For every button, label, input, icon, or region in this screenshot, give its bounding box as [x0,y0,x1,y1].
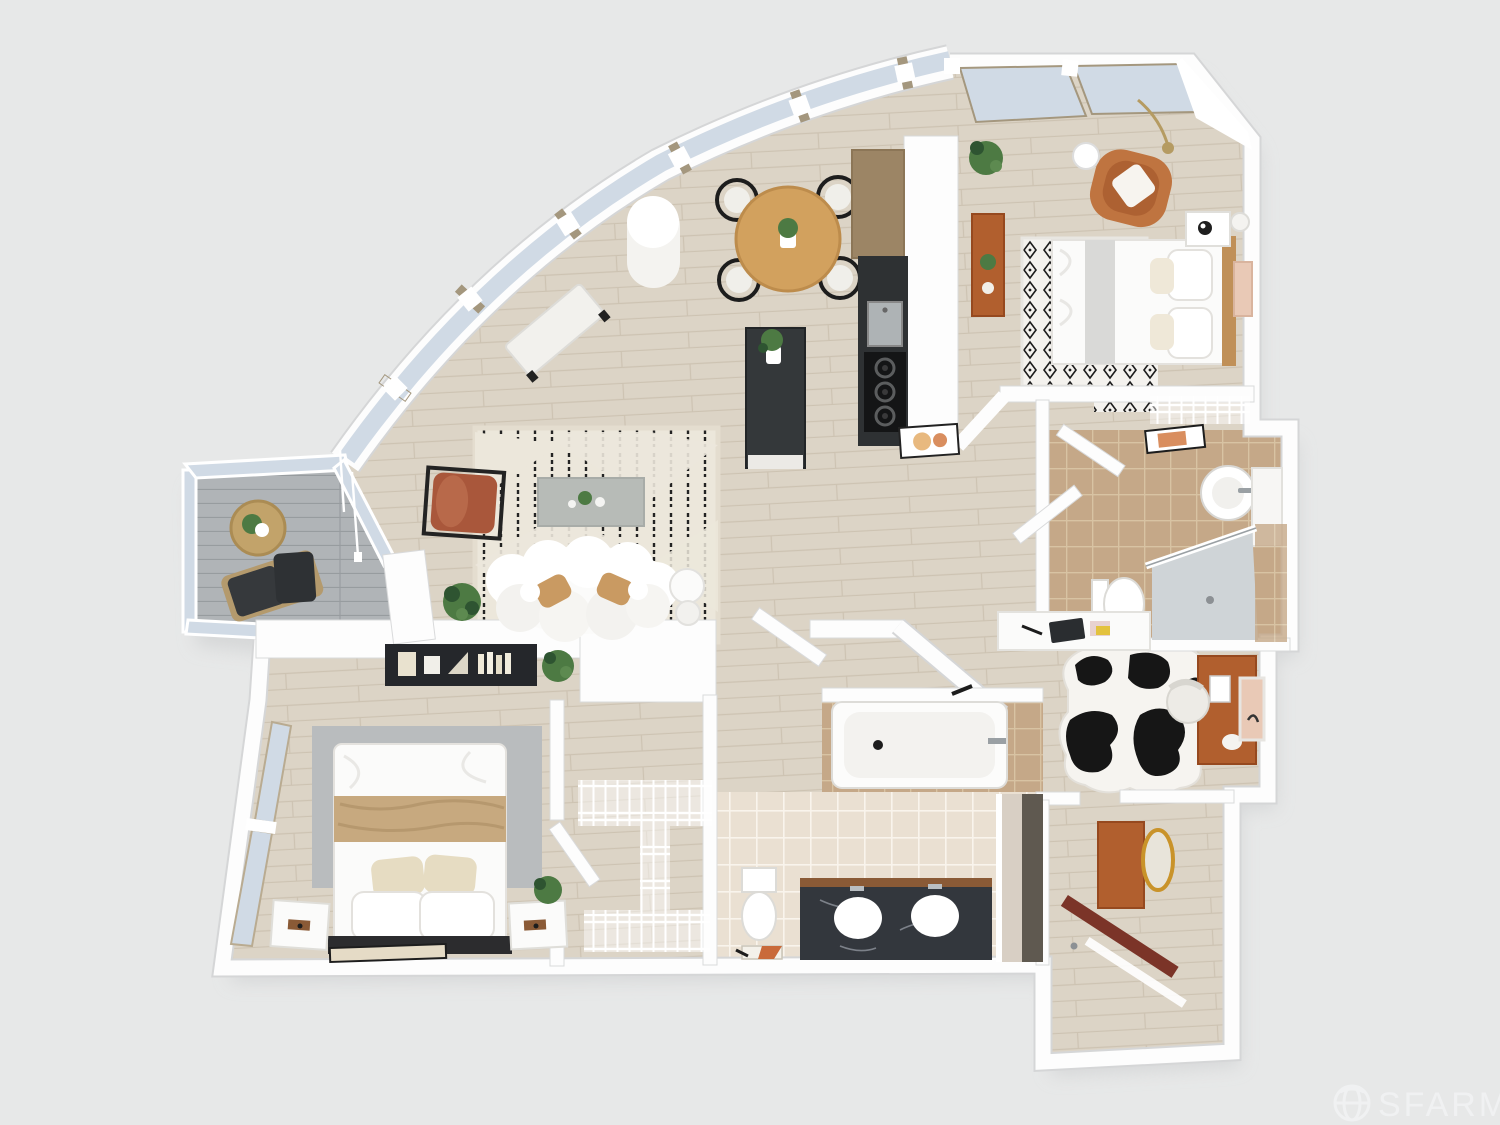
bath1-top-wall [810,620,904,638]
desk-paper [1210,676,1230,702]
dining-area [717,177,860,300]
office-leaning-art [1240,678,1264,740]
tub-drain [873,740,883,750]
gas-stove [864,352,906,432]
bed-primary [1052,236,1236,366]
entry-console [1098,822,1144,908]
office-chair [1167,681,1209,723]
kitchen-cabinets-upper [852,150,904,258]
accent-armchair [424,467,504,538]
vanity-sink [911,895,959,937]
bathtub [832,686,1007,788]
desk-nook [998,612,1150,650]
watermark-text: SFARMLS [1378,1086,1500,1124]
bath-mat [736,946,782,959]
faucet [882,307,887,312]
bedroom1-plant [969,141,1003,175]
pillow [1168,308,1212,358]
double-vanity [800,878,992,960]
accent-pillow [1150,258,1174,294]
office-entry-wall-b [1120,790,1234,803]
toilet-1 [742,868,776,940]
side-table [670,569,704,603]
wire-shelf [1150,396,1250,424]
vanity-sink [834,897,882,939]
floor-plant [443,583,481,621]
console-plant [542,650,574,682]
table-centerpiece-plant [778,218,798,248]
closet-art [1145,425,1205,453]
papers [1096,626,1110,635]
pillow [420,892,494,940]
kitchen-wall [904,136,958,450]
tub-alcove-wall [822,688,1043,702]
media-console [385,644,537,686]
kitchen-island [746,328,805,469]
nightstand-left [270,900,329,950]
coffee-table [538,478,644,526]
wire-shelf [640,826,670,910]
pillow [352,892,426,940]
bedroom2-plant [534,876,562,904]
kitchen-end-art [899,424,959,458]
floor-plan-canvas: SFARMLS [0,0,1500,1125]
bedroom1-wall-art [1234,262,1252,316]
shower-1 [996,794,1043,962]
bed-second [328,744,512,954]
bed-throw [1085,240,1115,364]
leaning-art [330,944,446,962]
pillow [1168,250,1212,300]
floor-plan-image: SFARMLS [0,0,1500,1125]
nightstand-right [509,901,567,950]
entry-round-mirror [1143,830,1173,890]
column [627,196,680,288]
closet-bedroom2-wall-a [550,700,564,820]
tub-faucet [988,738,1006,744]
bedroom1-dresser [972,214,1004,316]
lamp [1231,213,1249,231]
accent-pillow [1150,314,1174,350]
accent-pillow [422,854,477,896]
watermark: SFARMLS [1335,1086,1500,1124]
side-table-round [1073,143,1099,169]
side-table-small [676,601,700,625]
wire-shelf [584,910,710,952]
wire-shelf [578,780,712,826]
